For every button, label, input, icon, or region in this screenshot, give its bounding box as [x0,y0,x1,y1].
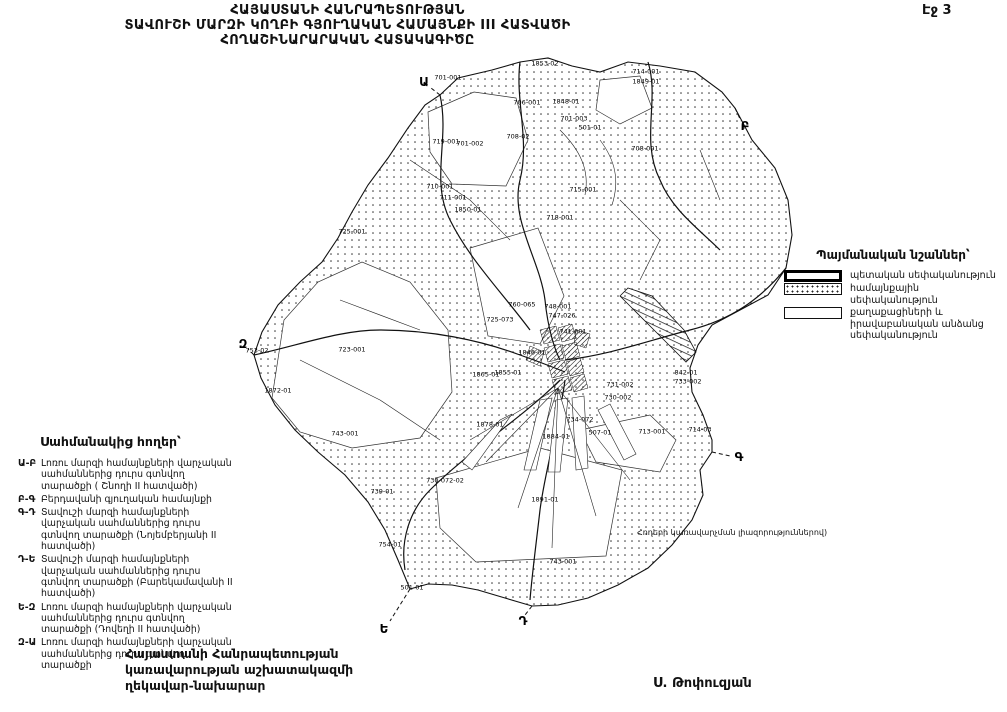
title-line-3: ՀՈՂԱՇԻՆԱՐԱՐԱԿԱՆ ՀԱՏԱԿԱԳԻԾԸ [90,33,605,48]
map-title: ՀԱՅԱՍՏԱՆԻ ՀԱՆՐԱՊԵՏՈՒԹՅԱՆ ՏԱՎՈՒՇԻ ՄԱՐԶԻ Կ… [90,3,605,48]
parcel-number-label: 725-001 [338,229,365,236]
parcel-number-label: 842-01 [674,370,697,377]
parcel-number-label: 730-072-02 [426,478,464,485]
parcel-number-label: 1853-02 [531,61,558,68]
parcel-number-label: 1848-01 [552,99,579,106]
signature-name: Ս. Թոփուզյան [653,676,752,691]
border-lands-item: Բ-Գ Բերդավանի գյուղական համայնքի [18,494,236,505]
border-item-code: Դ-Ե [18,554,41,599]
parcel-number-label: 710-001 [426,184,453,191]
parcel-number-label: 715-001 [569,187,596,194]
parcel-number-label: 1891-01 [531,497,558,504]
parcel-number-label: 701-002 [456,141,483,148]
border-lands-item: Դ-Ե Տավուշի մարզի համայնքների վարչական ս… [18,554,236,599]
parcel-number-label: 718-001 [546,215,573,222]
parcel-number-label: 501-01 [400,585,423,592]
border-item-code: Գ-Դ [18,507,41,552]
boundary-letter: Դ [519,614,528,628]
parcel-number-label: 708-001 [631,146,658,153]
border-lands-item: Գ-Դ Տավուշի մարզի համայնքների վարչական ս… [18,507,236,552]
parcel-number-label: 754-01 [378,542,401,549]
border-lands-items: Ա-Բ Լոռու մարզի համայնքների վարչական սահ… [18,458,236,671]
legend-swatch [784,283,842,295]
official-line-2: կառավարության աշխատակազմի [125,662,353,678]
border-item-text: Լոռու մարզի համայնքների վարչական սահմանն… [41,458,236,492]
parcel-number-label: 1850-01 [454,207,481,214]
parcel-number-label: 1849-01 [632,79,659,86]
boundary-letter: Զ [239,337,248,351]
border-item-code: Զ-Ա [18,637,41,671]
border-lands-item: Ե-Զ Լոռու մարզի համայնքների վարչական սահ… [18,602,236,636]
border-lands-heading: Սահմանակից հողեր՝ [40,434,236,449]
parcel-number-label: 739-01 [370,489,393,496]
border-item-text: Տավուշի մարզի համայնքների վարչական սահմա… [41,554,236,599]
legend-swatch [784,270,842,282]
legend-heading: Պայմանական նշաններ՝ [784,248,1002,262]
border-lands-item: Ա-Բ Լոռու մարզի համայնքների վարչական սահ… [18,458,236,492]
legend-item-label: քաղաքացիների և իրավաբանական անձանց սեփակ… [850,307,998,342]
parcel-number-label: 753-02 [245,348,268,355]
parcel-number-label: 711-001 [439,195,466,202]
parcel-number-label: 747-026 [548,313,575,320]
legend: Պայմանական նշաններ՝ պետական սեփականությո… [784,248,1002,343]
border-item-code: Ե-Զ [18,602,41,636]
border-item-text: Բերդավանի գյուղական համայնքի [41,494,236,505]
border-lands-block: Սահմանակից հողեր՝ Ա-Բ Լոռու մարզի համայն… [18,434,236,673]
parcel-number-label: 1855-01 [494,370,521,377]
parcel-number-label: 708-02 [506,134,529,141]
boundary-letter: Բ [741,119,750,133]
legend-item: պետական սեփականություն [784,270,1002,282]
border-item-code: Ա-Բ [18,458,41,492]
parcel-number-label: 733-002 [674,379,701,386]
page-number: Էջ 3 [922,3,952,18]
legend-item-label: համայնքային սեփականություն [850,283,998,306]
parcel-number-label: 1878-01 [476,422,503,429]
legend-item: համայնքային սեփականություն [784,283,1002,306]
title-line-1: ՀԱՅԱՍՏԱՆԻ ՀԱՆՐԱՊԵՏՈՒԹՅԱՆ [90,3,605,18]
parcel-number-label: 734-072 [566,417,593,424]
parcel-number-label: 706-001 [513,100,540,107]
legend-item: քաղաքացիների և իրավաբանական անձանց սեփակ… [784,307,1002,342]
parcel-number-label: 501-01 [578,125,601,132]
parcel-number-label: 743-001 [331,431,358,438]
parcel-number-label: 701-001 [434,75,461,82]
parcel-number-label: 725-073 [486,317,513,324]
official-block: Հայաստանի Հանրապետության կառավարության ա… [125,646,353,694]
parcel-number-label: 743-001 [549,559,576,566]
legend-swatch [784,307,842,319]
parcel-number-label: 507-01 [588,430,611,437]
official-line-1: Հայաստանի Հանրապետության [125,646,353,662]
official-line-3: ղեկավար-նախարար [125,678,353,694]
title-line-2: ՏԱՎՈՒՇԻ ՄԱՐԶԻ ԿՈՂԲԻ ԳՅՈՒՂԱԿԱՆ ՀԱՄԱՅՆՔԻ I… [90,18,605,33]
parcel-number-label: 731-002 [606,382,633,389]
parcel-number-label: 1884-01 [542,434,569,441]
boundary-letter: Գ [735,450,744,464]
parcel-number-label: 760-065 [508,302,535,309]
parcel-number-label: 714-001 [632,69,659,76]
boundary-letter: Ե [380,622,389,636]
legend-items: պետական սեփականություն համայնքային սեփակ… [784,270,1002,342]
parcel-number-label: 1846-01 [518,350,545,357]
parcel-number-label: 748-001 [544,304,571,311]
parcel-number-label: 713-001 [638,429,665,436]
parcel-number-label: 714-03 [688,427,711,434]
parcel-number-label: 701-003 [560,116,587,123]
parcel-number-label: 1872-01 [264,388,291,395]
border-item-text: Լոռու մարզի համայնքների վարչական սահմանն… [41,602,236,636]
parcel-number-label: 741-001 [559,329,586,336]
parcel-number-label: 730-002 [604,395,631,402]
cadastral-map-page: 1853-02 701-001 714-001 1849-01 706-001 … [0,0,1007,712]
boundary-letter: Ա [419,75,429,89]
legend-item-label: պետական սեփականություն [850,270,998,282]
map-annotation: Հողերի կառավարչման լիազորություններով) [637,528,827,537]
parcel-number-label: 723-001 [338,347,365,354]
border-item-text: Տավուշի մարզի համայնքների վարչական սահմա… [41,507,236,552]
border-item-code: Բ-Գ [18,494,41,505]
